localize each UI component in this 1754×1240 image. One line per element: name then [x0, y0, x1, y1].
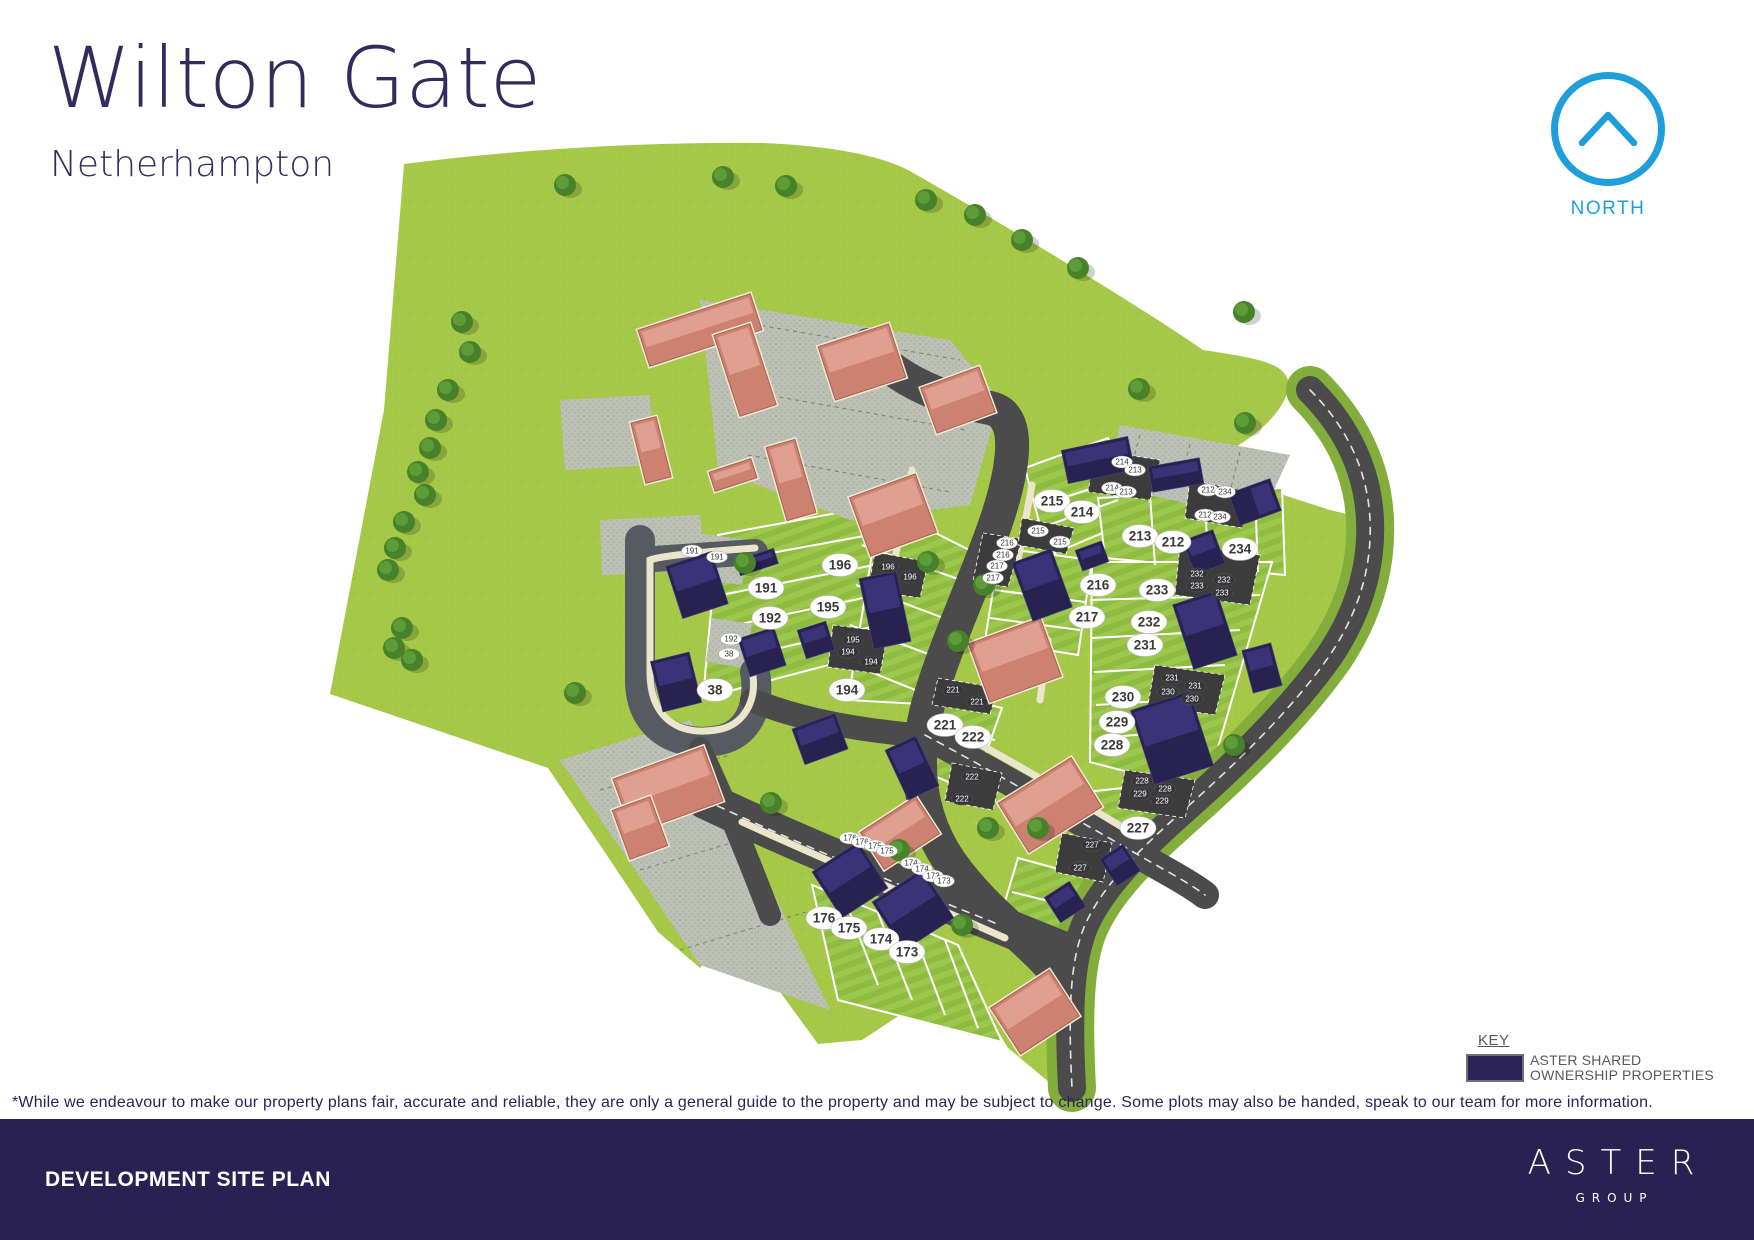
svg-text:231: 231 [1188, 682, 1202, 691]
svg-text:234: 234 [1213, 513, 1227, 522]
parking-bay-label: 221 [943, 684, 964, 696]
svg-text:213: 213 [1128, 466, 1142, 475]
parking-bay-label: 215 [1050, 536, 1071, 548]
site-plan-page: 1911911923817617617517517417417317321421… [0, 0, 1754, 1240]
svg-text:217: 217 [1076, 610, 1099, 625]
svg-text:222: 222 [965, 773, 979, 782]
parking-bay-label: 233 [1187, 580, 1208, 592]
svg-text:196: 196 [829, 558, 852, 573]
plot-label: 213 [1122, 525, 1158, 548]
svg-text:227: 227 [1073, 864, 1087, 873]
key-heading: KEY [1478, 1032, 1736, 1049]
svg-text:216: 216 [1087, 578, 1110, 593]
parking-bay-label: 232 [1187, 568, 1208, 580]
svg-text:215: 215 [1041, 494, 1064, 509]
plot-label: 212 [1155, 531, 1191, 554]
parking-bay-label: 227 [1070, 862, 1091, 874]
parking-bay-label: 222 [962, 771, 983, 783]
parking-bay-label: 231 [1162, 672, 1183, 684]
plot-label: 194 [829, 679, 865, 702]
plot-label: 214 [1064, 501, 1100, 524]
parking-bay-label: 216 [997, 537, 1018, 549]
key-label: ASTER SHARED OWNERSHIP PROPERTIES [1530, 1053, 1714, 1083]
parking-bay-label: 234 [1210, 511, 1231, 523]
parking-bay-label: 217 [987, 560, 1008, 572]
svg-text:196: 196 [903, 573, 917, 582]
plot-label: 196 [822, 554, 858, 577]
parking-bay-label: 234 [1215, 486, 1236, 498]
svg-text:229: 229 [1133, 790, 1147, 799]
shared-ownership-swatch [1466, 1054, 1524, 1082]
svg-text:191: 191 [755, 581, 778, 596]
svg-text:196: 196 [881, 563, 895, 572]
parking-bay-label: 192 [721, 633, 742, 645]
svg-text:175: 175 [880, 847, 894, 856]
header: Wilton Gate Netherhampton [48, 36, 541, 185]
plot-label: 233 [1139, 579, 1175, 602]
parking-bay-label: 213 [1116, 486, 1137, 498]
svg-text:222: 222 [962, 730, 985, 745]
svg-text:228: 228 [1135, 777, 1149, 786]
svg-text:212: 212 [1201, 486, 1215, 495]
plot-label: 228 [1094, 734, 1130, 757]
parking-bay-label: 173 [934, 875, 955, 887]
parking-bay-label: 195 [843, 634, 864, 646]
north-compass: NORTH [1548, 72, 1668, 220]
svg-text:234: 234 [1229, 542, 1252, 557]
svg-text:232: 232 [1138, 615, 1161, 630]
parking-bay-label: 215 [1028, 525, 1049, 537]
parking-bay-label: 38 [719, 648, 740, 660]
page-title: Wilton Gate [48, 36, 541, 120]
svg-text:195: 195 [846, 636, 860, 645]
svg-text:194: 194 [841, 648, 855, 657]
svg-text:216: 216 [1000, 539, 1014, 548]
svg-text:232: 232 [1190, 570, 1204, 579]
parking-bay-label: 230 [1182, 693, 1203, 705]
tree-icon [1233, 301, 1261, 325]
svg-text:215: 215 [1053, 538, 1067, 547]
svg-text:222: 222 [955, 795, 969, 804]
svg-text:214: 214 [1071, 505, 1094, 520]
svg-text:191: 191 [685, 547, 699, 556]
svg-text:230: 230 [1185, 695, 1199, 704]
plot-label: 229 [1099, 711, 1135, 734]
svg-text:173: 173 [937, 877, 951, 886]
svg-text:221: 221 [934, 718, 957, 733]
svg-text:233: 233 [1190, 582, 1204, 591]
svg-text:233: 233 [1215, 589, 1229, 598]
svg-text:217: 217 [990, 562, 1004, 571]
parking-bay-label: 228 [1132, 775, 1153, 787]
plot-label: 231 [1127, 634, 1163, 657]
svg-text:215: 215 [1031, 527, 1045, 536]
parking-bay-label: 231 [1185, 680, 1206, 692]
plot-label: 234 [1222, 538, 1258, 561]
svg-text:230: 230 [1112, 690, 1135, 705]
parking-bay-label: 191 [682, 545, 703, 557]
svg-text:221: 221 [970, 698, 984, 707]
svg-text:233: 233 [1146, 583, 1169, 598]
plot-label: 192 [752, 607, 788, 630]
svg-text:227: 227 [1085, 841, 1099, 850]
north-label: NORTH [1548, 198, 1668, 220]
parking-bay-label: 194 [861, 656, 882, 668]
svg-text:213: 213 [1119, 488, 1133, 497]
plot-label: 195 [810, 596, 846, 619]
svg-text:173: 173 [896, 945, 919, 960]
svg-text:195: 195 [817, 600, 840, 615]
parking-bay-label: 228 [1155, 783, 1176, 795]
svg-text:229: 229 [1106, 715, 1129, 730]
svg-text:38: 38 [707, 683, 723, 698]
svg-text:175: 175 [838, 921, 861, 936]
svg-text:194: 194 [864, 658, 878, 667]
footer-bar: DEVELOPMENT SITE PLAN ASTER GROUP [0, 1119, 1754, 1240]
parking-bay-label: 175 [877, 845, 898, 857]
plot-label: 175 [831, 917, 867, 940]
svg-text:217: 217 [986, 574, 1000, 583]
parking-bay-label: 213 [1125, 464, 1146, 476]
parking-bay-label: 229 [1130, 788, 1151, 800]
plot-label: 191 [748, 577, 784, 600]
svg-text:228: 228 [1158, 785, 1172, 794]
svg-text:213: 213 [1129, 529, 1152, 544]
parking-bay-label: 217 [983, 572, 1004, 584]
north-arrow-icon [1551, 72, 1665, 186]
svg-text:232: 232 [1217, 576, 1231, 585]
parking-bay-label: 232 [1214, 574, 1235, 586]
plot-label: 222 [955, 726, 991, 749]
svg-text:231: 231 [1165, 674, 1179, 683]
parking-bay-label: 194 [838, 646, 859, 658]
parking-bay-label: 216 [993, 549, 1014, 561]
svg-text:234: 234 [1218, 488, 1232, 497]
svg-text:214: 214 [1115, 458, 1129, 467]
plot-label: 232 [1131, 611, 1167, 634]
svg-text:231: 231 [1134, 638, 1157, 653]
parking-bay-label: 196 [878, 561, 899, 573]
svg-text:221: 221 [946, 686, 960, 695]
plot-label: 230 [1105, 686, 1141, 709]
parking-bay-label: 191 [707, 551, 728, 563]
parking-bay-label: 221 [967, 696, 988, 708]
plot-label: 217 [1069, 606, 1105, 629]
parking-bay-label: 196 [900, 571, 921, 583]
parking-bay-label: 229 [1152, 795, 1173, 807]
map-key: KEY ASTER SHARED OWNERSHIP PROPERTIES [1466, 1032, 1736, 1083]
svg-text:38: 38 [725, 650, 734, 659]
aster-group-logo: ASTER GROUP [1526, 1143, 1696, 1205]
svg-text:227: 227 [1127, 821, 1150, 836]
footer-title: DEVELOPMENT SITE PLAN [45, 1168, 331, 1192]
svg-text:191: 191 [710, 553, 724, 562]
parking-bay-label: 227 [1082, 839, 1103, 851]
svg-text:212: 212 [1162, 535, 1185, 550]
svg-text:174: 174 [870, 932, 893, 947]
plot-label: 173 [889, 941, 925, 964]
svg-text:230: 230 [1161, 688, 1175, 697]
brand-name: ASTER [1526, 1143, 1710, 1183]
svg-text:216: 216 [996, 551, 1010, 560]
brand-sub: GROUP [1526, 1191, 1703, 1205]
svg-text:229: 229 [1155, 797, 1169, 806]
plot-label: 216 [1080, 574, 1116, 597]
svg-text:192: 192 [759, 611, 782, 626]
plot-label: 38 [697, 679, 733, 702]
plot-label: 227 [1120, 817, 1156, 840]
parking-bay-label: 233 [1212, 587, 1233, 599]
parking-bay-label: 222 [952, 793, 973, 805]
page-subtitle: Netherhampton [50, 144, 541, 185]
disclaimer-text: *While we endeavour to make our property… [12, 1094, 1742, 1112]
parking-bay-label: 230 [1158, 686, 1179, 698]
svg-text:194: 194 [836, 683, 859, 698]
svg-text:192: 192 [724, 635, 738, 644]
svg-text:228: 228 [1101, 738, 1124, 753]
